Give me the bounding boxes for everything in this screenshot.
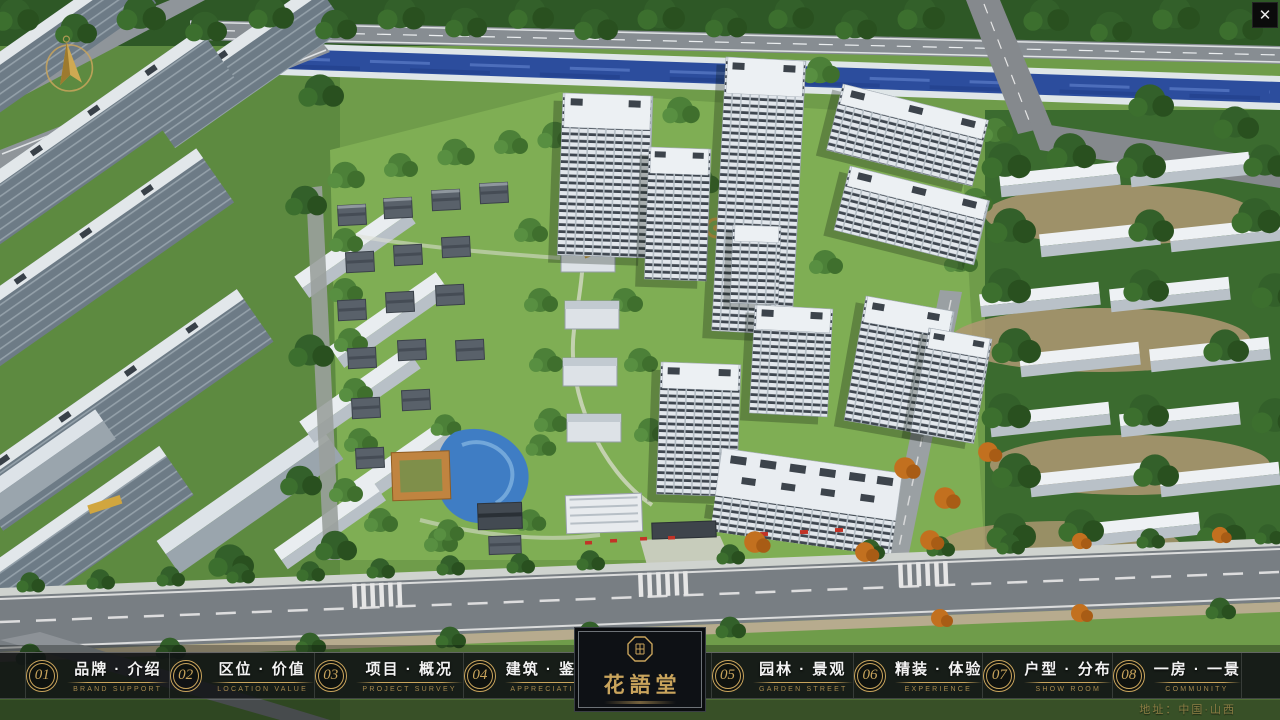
nav-item-subtitle: COMMUNITY — [1166, 685, 1229, 693]
close-icon[interactable]: ✕ — [1252, 2, 1278, 28]
nav-item-subtitle: BRAND SUPPORT — [73, 685, 162, 693]
nav-number-badge: 05 — [712, 660, 744, 692]
nav-item-subtitle: SHOW ROOM — [1035, 685, 1101, 693]
logo-tagline-line — [604, 701, 676, 704]
gold-divider — [1024, 682, 1111, 683]
gold-divider — [356, 682, 463, 683]
nav-item-location[interactable]: 02 区位 · 价值 LOCATION VALUE — [169, 653, 314, 698]
nav-item-label: 户型 · 分布 — [1024, 658, 1111, 679]
logo[interactable]: 花語堂 — [578, 631, 702, 708]
nav-item-label: 品牌 · 介绍 — [74, 658, 161, 679]
nav-item-floorplan[interactable]: 07 户型 · 分布 SHOW ROOM — [982, 653, 1111, 698]
nav-lead-spacer — [0, 653, 25, 698]
nav-number-badge: 08 — [1113, 660, 1145, 692]
gold-divider — [1154, 682, 1241, 683]
nav-item-subtitle: PROJECT SURVEY — [362, 685, 456, 693]
nav-item-label: 一房 · 一景 — [1154, 658, 1241, 679]
gold-divider — [211, 682, 314, 683]
nav-item-subtitle: LOCATION VALUE — [217, 685, 308, 693]
nav-item-architecture[interactable]: 04 建筑 · 鉴赏 APPRECIATION — [463, 653, 594, 698]
nav-item-project[interactable]: 03 项目 · 概况 PROJECT SURVEY — [314, 653, 463, 698]
nav-item-subtitle: APPRECIATION — [510, 685, 588, 693]
nav-tail-spacer — [1241, 653, 1280, 698]
nav-item-garden[interactable]: 05 园林 · 景观 GARDEN STREET — [711, 653, 854, 698]
nav-item-label: 项目 · 概况 — [366, 658, 453, 679]
address-text: 地址：中国·山西 — [1139, 701, 1236, 717]
app-window: ✕ 01 品牌 · 介绍 BRAND SUPPORT 02 区位 · 价值 LO… — [0, 0, 1280, 720]
nav-item-subtitle: EXPERIENCE — [905, 685, 972, 693]
seal-icon — [627, 636, 653, 667]
nav-item-label: 区位 · 价值 — [218, 658, 305, 679]
nav-item-label: 精装 · 体验 — [895, 658, 982, 679]
nav-item-community[interactable]: 08 一房 · 一景 COMMUNITY — [1112, 653, 1241, 698]
nav-item-subtitle: GARDEN STREET — [759, 685, 847, 693]
nav-number-badge: 04 — [464, 660, 496, 692]
nav-number-badge: 07 — [983, 660, 1015, 692]
gold-divider — [67, 682, 168, 683]
gold-divider — [753, 682, 854, 683]
nav-item-label: 园林 · 景观 — [759, 658, 846, 679]
nav-number-badge: 01 — [26, 660, 58, 692]
nav-item-interior[interactable]: 06 精装 · 体验 EXPERIENCE — [853, 653, 982, 698]
site-plan-render[interactable] — [0, 0, 1280, 720]
nav-number-badge: 06 — [854, 660, 886, 692]
nav-item-brand[interactable]: 01 品牌 · 介绍 BRAND SUPPORT — [25, 653, 168, 698]
gold-divider — [895, 682, 982, 683]
nav-number-badge: 03 — [315, 660, 347, 692]
logo-title: 花語堂 — [599, 669, 682, 699]
compass-icon — [37, 29, 101, 99]
nav-number-badge: 02 — [170, 660, 202, 692]
